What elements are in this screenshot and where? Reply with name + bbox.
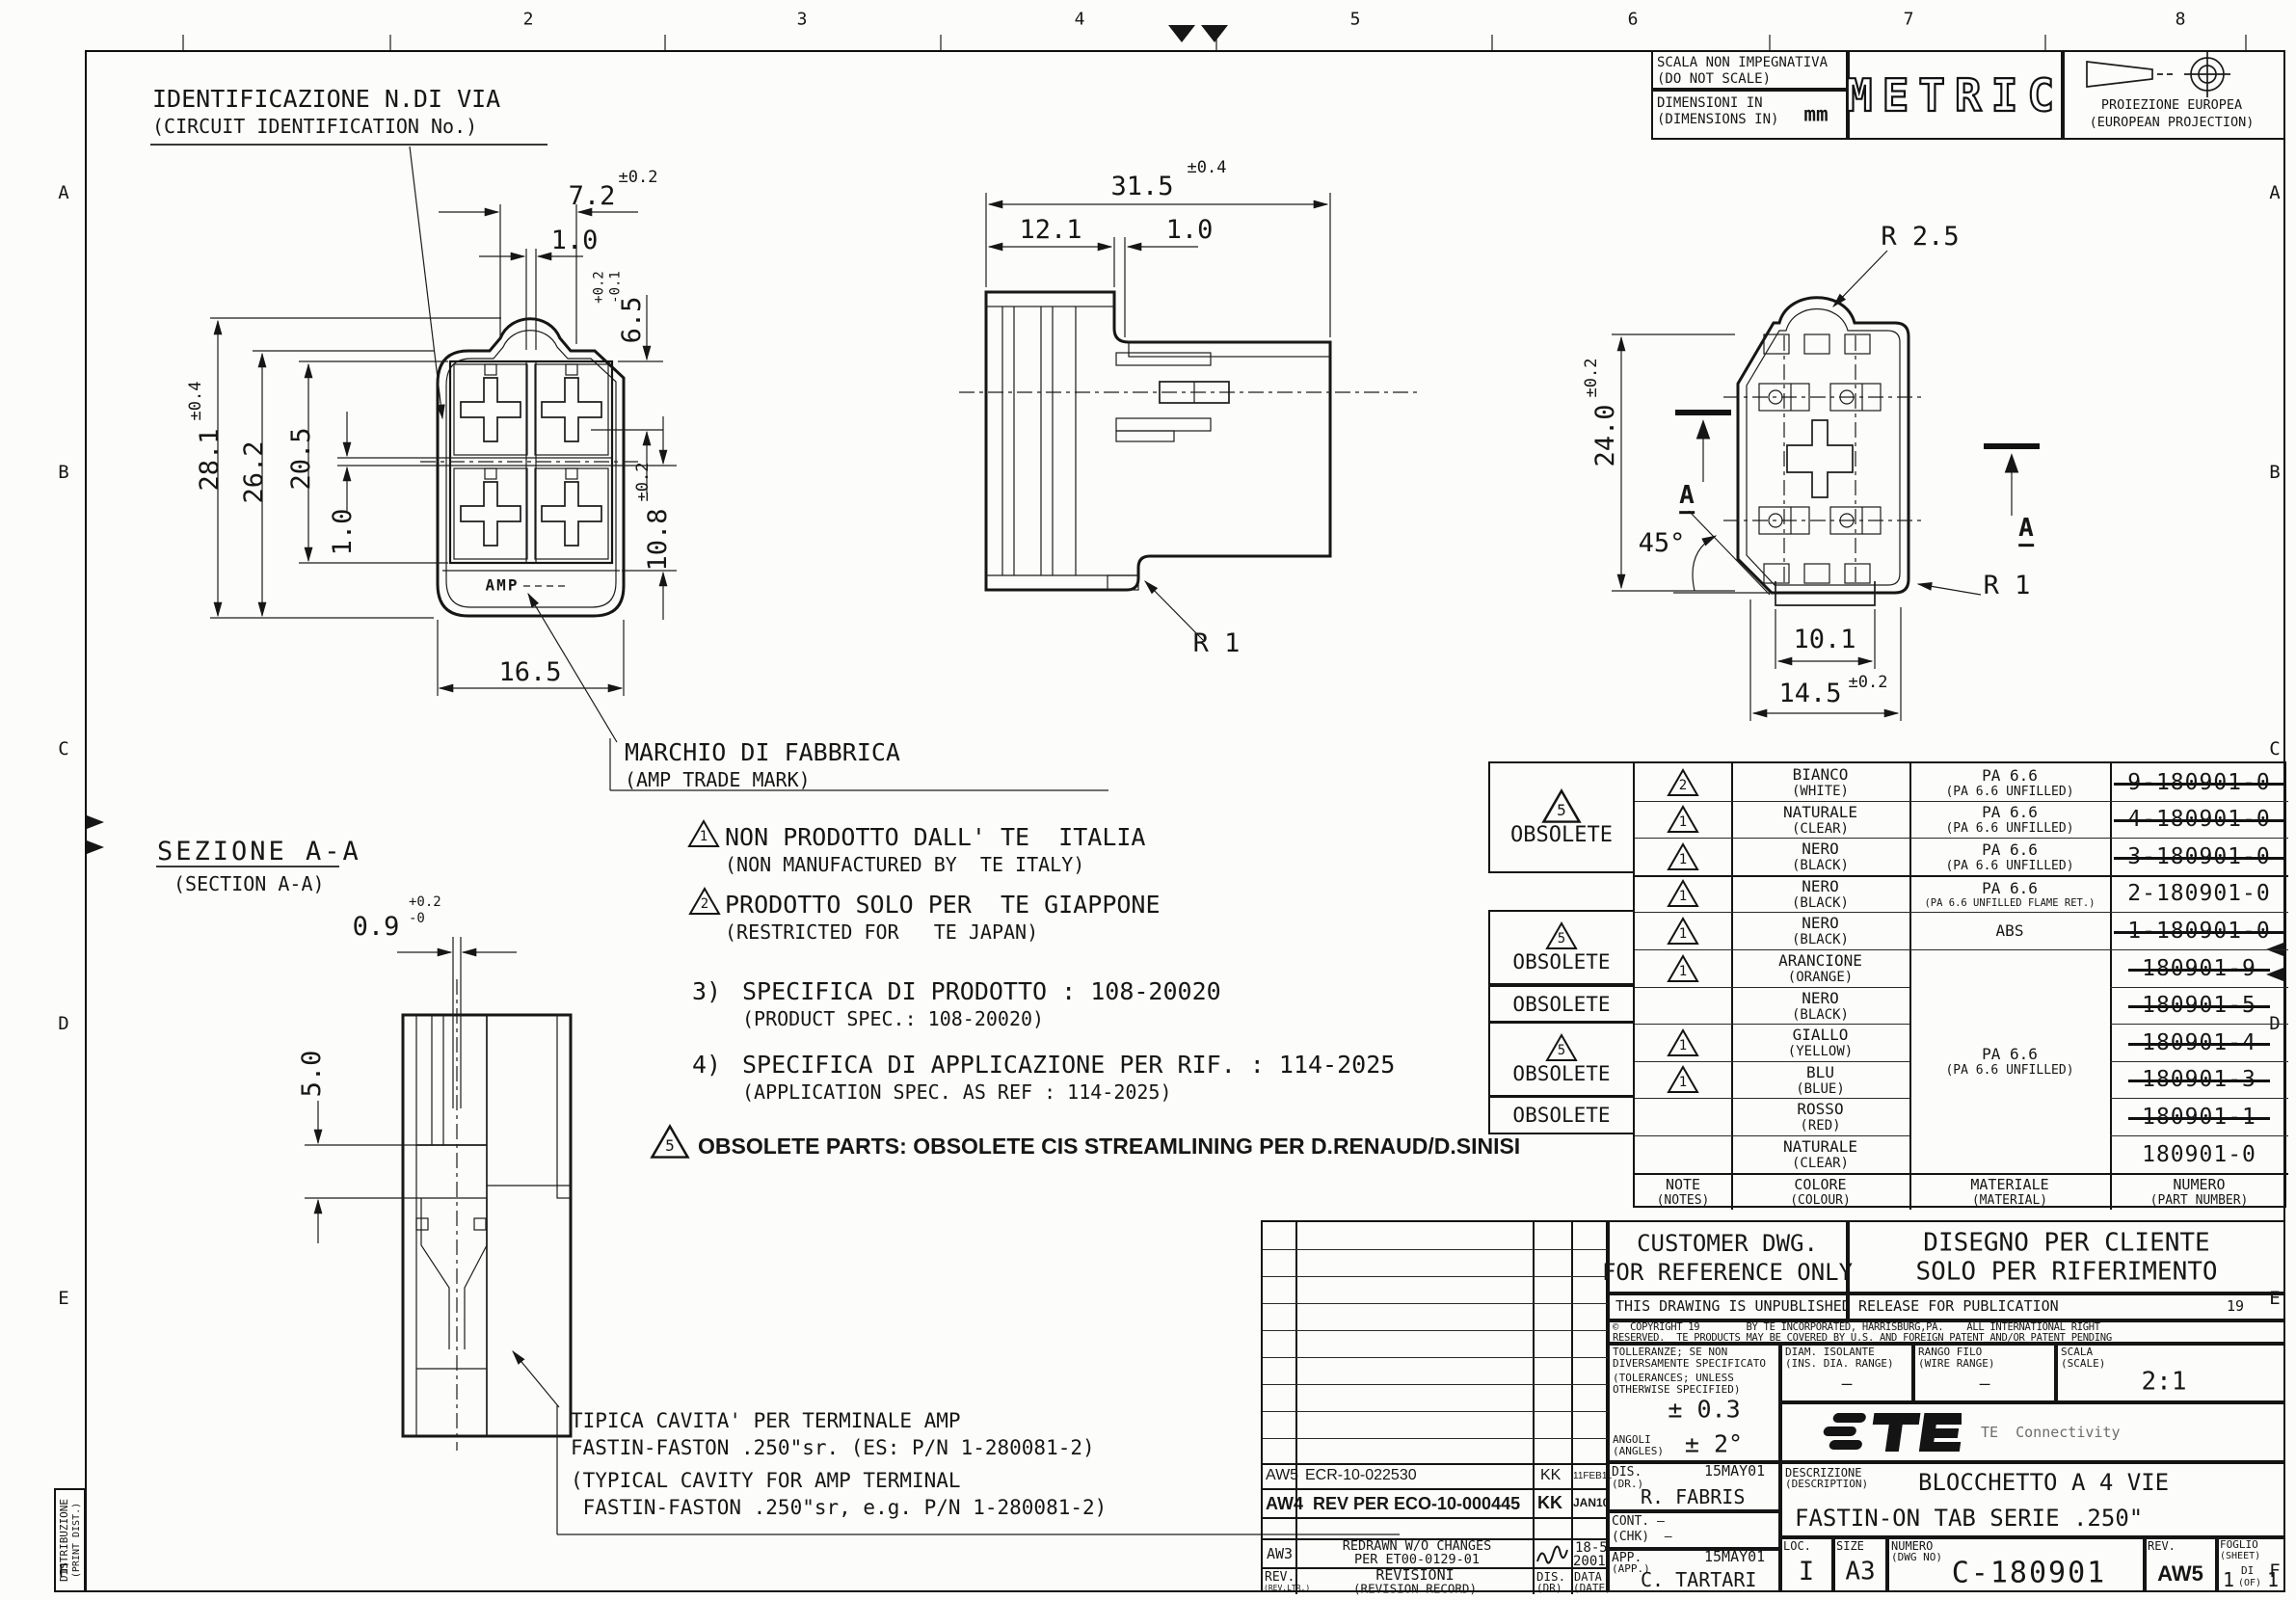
sheet-number: 1 <box>2223 1569 2234 1592</box>
drawing-sheet: 2 3 4 5 6 7 8 A B C D E F A B C D E F SC… <box>0 0 2296 1600</box>
copyright-line2: RESERVED. TE PRODUCTS MAY BE COVERED BY … <box>1613 1332 2112 1344</box>
rev-row-desc: ECR-10-022530 <box>1305 1467 1417 1485</box>
dim-rib: 1.0 <box>551 226 599 256</box>
zone-number: 3 <box>797 9 808 29</box>
dim-length: 31.5 <box>1110 172 1173 202</box>
zone-letter: B <box>58 462 68 483</box>
wire-range-value: — <box>1980 1373 1990 1394</box>
checker-label2: (CHK) — <box>1612 1530 1672 1544</box>
scale-label2: (SCALE) <box>2061 1358 2105 1371</box>
dim-height-total-tol: ±0.4 <box>186 382 205 421</box>
dim-height-total: 28.1 <box>195 428 226 491</box>
dim-depth-tol: +0.2 -0.1 <box>591 271 623 304</box>
loc-value: I <box>1799 1557 1814 1587</box>
zone-letter: A <box>2269 182 2280 203</box>
note-5-text: OBSOLETE PARTS: OBSOLETE CIS STREAMLININ… <box>698 1133 1520 1160</box>
customer-dwg-line2: FOR REFERENCE ONLY <box>1602 1259 1853 1286</box>
dim-base-width: 14.5 <box>1778 679 1841 709</box>
angles-value: ± 2° <box>1685 1429 1743 1458</box>
rev-header-rec2: (REVISION RECORD) <box>1353 1583 1477 1597</box>
zone-letter: C <box>58 738 68 760</box>
checker-label1: CONT. — <box>1612 1514 1665 1529</box>
dim-cap: 12.1 <box>1019 215 1081 246</box>
dimensions-in-label: DIMENSIONI IN <box>1657 95 1763 112</box>
rev-label: REV. <box>2148 1539 2176 1553</box>
projection-label: PROIEZIONE EUROPEA <box>2101 98 2242 114</box>
ins-dia-label2: (INS. DIA. RANGE) <box>1785 1358 1894 1371</box>
amp-trademark: AMP <box>486 577 520 596</box>
note-2-number: 2 <box>688 896 721 912</box>
note-4-text-en: (APPLICATION SPEC. AS REF : 114-2025) <box>742 1081 1172 1105</box>
note-2-text-en: (RESTRICTED FOR TE JAPAN) <box>725 921 1038 945</box>
do-not-scale-label: SCALA NON IMPEGNATIVA <box>1657 55 1828 71</box>
cavity-callout-4: FASTIN-FASTON .250"sr, e.g. P/N 1-280081… <box>571 1496 1107 1520</box>
dim-length-tol: ±0.4 <box>1188 158 1227 177</box>
dim-bump-width-tol: ±0.2 <box>619 168 658 187</box>
trademark-callout-en: (AMP TRADE MARK) <box>625 769 811 792</box>
dim-rear-height-tol: ±0.2 <box>1582 359 1601 398</box>
dim-r1-side: R 1 <box>1193 628 1241 659</box>
scale-value: 2:1 <box>2142 1368 2187 1398</box>
approver-date: 15MAY01 <box>1704 1549 1765 1566</box>
ins-dia-value: — <box>1842 1373 1853 1394</box>
dim-base-width-tol: ±0.2 <box>1849 673 1888 692</box>
te-logo-icon <box>1817 1409 1962 1455</box>
zone-number: 7 <box>1904 9 1914 29</box>
note-cell: 2 <box>1635 763 1731 801</box>
description-label2: (DESCRIPTION) <box>1785 1479 1868 1491</box>
loc-label: LOC. <box>1783 1539 1811 1553</box>
disegno-line2: SOLO PER RIFERIMENTO <box>1915 1258 2217 1288</box>
cavity-callout-2: FASTIN-FASTON .250"sr. (ES: P/N 1-280081… <box>571 1436 1095 1460</box>
distribution-label1: DISTRIBUZIONE <box>57 1499 70 1582</box>
section-subtitle: (SECTION A-A) <box>174 873 325 896</box>
projection-label-en: (EUROPEAN PROJECTION) <box>2090 116 2255 131</box>
size-label: SIZE <box>1836 1539 1864 1553</box>
zone-letter: D <box>58 1013 68 1034</box>
approver-name: C. TARTARI <box>1641 1569 1756 1592</box>
cavity-callout-1: TIPICA CAVITA' PER TERMINALE AMP <box>571 1409 961 1433</box>
description-line1: BLOCCHETTO A 4 VIE <box>1918 1469 2169 1496</box>
dim-r25: R 2.5 <box>1881 222 1959 253</box>
note-1-number: 1 <box>687 829 720 844</box>
release-year: 19 <box>2227 1298 2244 1316</box>
wire-range-label2: (WIRE RANGE) <box>1918 1358 1994 1371</box>
dimensions-in-label-en: (DIMENSIONS IN) <box>1657 112 1778 128</box>
dim-r1-rear: R 1 <box>1984 571 2031 601</box>
dim-tab-width: 10.1 <box>1793 625 1855 655</box>
note-5-number: 5 <box>650 1136 690 1155</box>
obsolete-box-4: 5 OBSOLETE <box>1488 1022 1635 1097</box>
dim-wall: 1.0 <box>328 509 359 556</box>
rev-row-by: KK <box>1537 1493 1562 1513</box>
rev-row-date: JAN10 <box>1573 1496 1609 1509</box>
dim-width: 16.5 <box>498 657 561 688</box>
dim-wall-side: 1.0 <box>1166 215 1214 246</box>
rev-row-id: AW3 <box>1267 1546 1293 1563</box>
size-value: A3 <box>1845 1558 1875 1587</box>
obsolete-box-5: OBSOLETE <box>1488 1096 1635 1134</box>
tolerances-line2: DIVERSAMENTE SPECIFICATO <box>1613 1358 1766 1371</box>
note-4-number: 4) <box>692 1051 721 1080</box>
circuit-id-callout-en: (CIRCUIT IDENTIFICATION No.) <box>152 116 477 139</box>
note-2-triangle-icon: 2 <box>688 887 721 916</box>
note-cell: 1 <box>1635 1024 1731 1061</box>
parts-table: 2 1 1 1 1 1 1 1 BIANCO(WHITE) NATURALE(C… <box>1633 761 2286 1208</box>
dim-height-lower: 10.8 <box>643 508 674 571</box>
zone-number: 2 <box>523 9 534 29</box>
description-line2: FASTIN-ON TAB SERIE .250" <box>1795 1505 2143 1532</box>
rev-value: AW5 <box>2157 1561 2203 1587</box>
cavity-callout-3: (TYPICAL CAVITY FOR AMP TERMINAL <box>571 1469 961 1493</box>
note-3-text-en: (PRODUCT SPEC.: 108-20020) <box>742 1008 1044 1031</box>
trademark-callout: MARCHIO DI FABBRICA <box>625 738 900 767</box>
rev-row-id: AW5 <box>1266 1467 1298 1485</box>
zone-letter: A <box>58 182 68 203</box>
section-arrow-label: A <box>2018 514 2034 547</box>
merged-material-cell: PA 6.6(PA 6.6 UNFILLED) <box>1909 949 2110 1173</box>
note-cell: 1 <box>1635 801 1731 838</box>
note-cell: 1 <box>1635 1061 1731 1098</box>
note-cell: 1 <box>1635 875 1731 912</box>
dim-angle: 45° <box>1639 528 1686 559</box>
rev-row-date: 11FEB11 <box>1573 1471 1612 1482</box>
note-1-text-en: (NON MANUFACTURED BY TE ITALY) <box>725 854 1084 877</box>
distribution-label2: (PRINT DIST.) <box>70 1499 83 1582</box>
section-arrow-label: A <box>1679 481 1695 514</box>
rev-row-desc: REV PER ECO-10-000445 <box>1313 1494 1520 1514</box>
rev-header-data2: (DATE) <box>1573 1583 1612 1595</box>
drafter-name: R. FABRIS <box>1641 1486 1745 1509</box>
sheet-label2: (SHEET) <box>2220 1551 2260 1562</box>
sheet-di: DI <box>2241 1565 2254 1578</box>
rev-row-id: AW4 <box>1266 1494 1303 1514</box>
obsolete-box-2: 5 OBSOLETE <box>1488 910 1635 985</box>
dim-height-cavity: 20.5 <box>286 427 317 490</box>
unpublished-label: THIS DRAWING IS UNPUBLISHED <box>1615 1298 1851 1316</box>
distribution-box: DISTRIBUZIONE (PRINT DIST.) <box>54 1488 86 1592</box>
zone-letter: B <box>2269 462 2280 483</box>
dim-depth: 6.5 <box>617 297 648 344</box>
note-1-triangle-icon: 1 <box>687 819 720 848</box>
section-title: SEZIONE A-A <box>157 837 361 867</box>
revision-record: AW5 ECR-10-022530 KK 11FEB11 AW4 REV PER… <box>1261 1220 1608 1592</box>
zone-number: 6 <box>1628 9 1639 29</box>
sheet-total: 1 <box>2267 1569 2279 1592</box>
note-3-text: SPECIFICA DI PRODOTTO : 108-20020 <box>742 977 1221 1006</box>
dim-rear-height: 24.0 <box>1590 404 1621 467</box>
drafter-label2: (DR.) <box>1612 1479 1643 1491</box>
tolerance-value: ± 0.3 <box>1668 1395 1740 1424</box>
unit-label: mm <box>1803 103 1828 127</box>
do-not-scale-label-en: (DO NOT SCALE) <box>1657 71 1771 88</box>
angles-label2: (ANGLES) <box>1613 1446 1664 1458</box>
dim-slot-tol: +0.2 -0 <box>409 894 441 926</box>
circuit-id-callout: IDENTIFICAZIONE N.DI VIA <box>152 85 500 114</box>
dim-height-lower-tol: ±0.2 <box>633 463 653 502</box>
note-1-text: NON PRODOTTO DALL' TE ITALIA <box>725 823 1146 852</box>
drafter-date: 15MAY01 <box>1704 1463 1765 1480</box>
dwg-no-label2: (DWG NO) <box>1891 1552 1942 1564</box>
obsolete-box-3: OBSOLETE <box>1488 985 1635 1023</box>
dim-section-depth: 5.0 <box>297 1051 328 1098</box>
obsolete-box-1: 5 OBSOLETE <box>1488 761 1635 873</box>
note-cell: 1 <box>1635 912 1731 949</box>
signature-scribble <box>1535 1540 1569 1567</box>
dwg-no-value: C-180901 <box>1952 1556 2107 1589</box>
dim-slot: 0.9 <box>353 912 400 943</box>
metric-label: METRIC <box>1846 69 2064 121</box>
note-3-number: 3) <box>692 977 721 1006</box>
rev-header-dis2: (DR) <box>1536 1583 1562 1595</box>
rev-row-date2: 2001 <box>1573 1554 1606 1570</box>
te-connectivity-label: TE Connectivity <box>1981 1425 2121 1442</box>
note-cell: 1 <box>1635 949 1731 987</box>
release-label: RELEASE FOR PUBLICATION <box>1858 1298 2059 1316</box>
zone-letter: C <box>2269 738 2280 760</box>
note-5-triangle-icon: 5 <box>650 1124 690 1159</box>
note-cell: 1 <box>1635 838 1731 875</box>
sheet-of: (OF) <box>2238 1578 2261 1589</box>
rev-header2: (REV.LTR.) <box>1264 1584 1310 1592</box>
customer-dwg-line1: CUSTOMER DWG. <box>1637 1230 1818 1257</box>
zone-number: 8 <box>2176 9 2186 29</box>
zone-letter: E <box>58 1288 68 1309</box>
rev-row-by: KK <box>1540 1467 1561 1485</box>
zone-number: 5 <box>1350 9 1361 29</box>
dim-bump-width: 7.2 <box>569 181 616 212</box>
dim-height-body: 26.2 <box>239 440 270 503</box>
disegno-line1: DISEGNO PER CLIENTE <box>1923 1229 2209 1259</box>
zone-number: 4 <box>1075 9 1085 29</box>
note-2-text: PRODOTTO SOLO PER TE GIAPPONE <box>725 891 1161 920</box>
note-4-text: SPECIFICA DI APPLICAZIONE PER RIF. : 114… <box>742 1051 1395 1080</box>
